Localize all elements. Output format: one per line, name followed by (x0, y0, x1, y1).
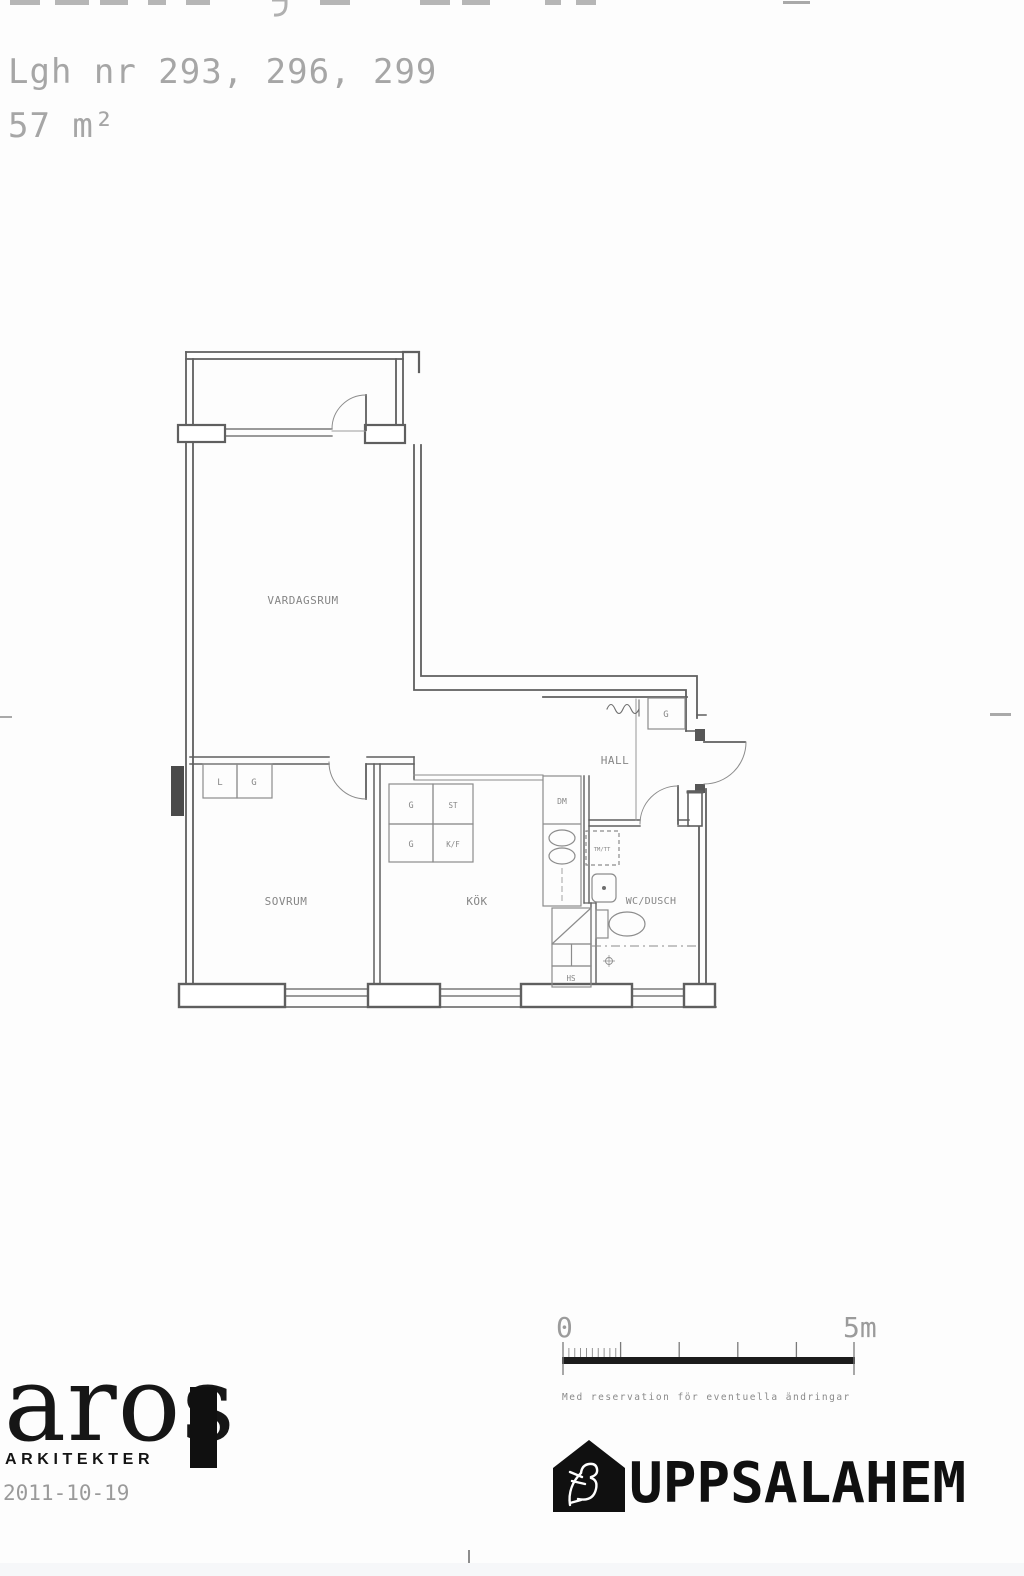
sink-bowl (549, 848, 575, 864)
label-kitchen-g2: G (408, 840, 413, 850)
drawing-date: 2011-10-19 (3, 1481, 129, 1505)
uppsalahem-house-icon (553, 1440, 625, 1512)
cropped-title-fragments (0, 0, 1024, 22)
label-tm-tt: TM/TT (594, 847, 611, 853)
sink-bowl (549, 830, 575, 846)
toilet-tank (596, 910, 608, 938)
uppsalahem-logo: UPPSALAHEM (548, 1430, 1020, 1522)
label-kok: KÖK (466, 895, 487, 908)
floorplan-drawing: VARDAGSRUM SOVRUM KÖK WC/DUSCH HALL L G … (160, 330, 780, 1030)
aros-subtitle: ARKITEKTER (5, 1451, 154, 1469)
aros-logo-bar (190, 1387, 217, 1468)
label-closet-l: L (217, 778, 222, 788)
scale-bar: 0 5m Med reservation för eventuella ändr… (540, 1295, 885, 1410)
scale-disclaimer: Med reservation för eventuella ändringar (562, 1392, 851, 1403)
toilet-bowl (609, 912, 645, 936)
floorplan-page: Lgh nr 293, 296, 299 57 m² (0, 0, 1024, 1576)
uppsalahem-logo-text: UPPSALAHEM (629, 1451, 966, 1516)
crop-mark-left (0, 716, 12, 718)
bottom-band (0, 1563, 1024, 1576)
walls (171, 352, 746, 1007)
label-hall-g: G (663, 710, 668, 720)
label-kitchen-st: ST (448, 801, 458, 810)
scale-bar-line (562, 1357, 855, 1364)
label-wc-dusch: WC/DUSCH (626, 896, 677, 907)
label-kitchen-kf: K/F (446, 840, 460, 849)
scale-five-m: 5m (843, 1311, 877, 1344)
label-dm: DM (557, 797, 567, 806)
label-sovrum: SOVRUM (265, 895, 308, 908)
label-vardagsrum: VARDAGSRUM (267, 594, 338, 607)
label-hall: HALL (601, 754, 630, 767)
label-hs: HS (566, 974, 576, 983)
crop-mark-right (990, 713, 1011, 716)
crop-mark-top-right (783, 1, 810, 4)
label-kitchen-g1: G (408, 801, 413, 811)
scale-zero: 0 (556, 1311, 573, 1344)
apartment-numbers: Lgh nr 293, 296, 299 (8, 52, 437, 92)
apartment-area: 57 m² (8, 106, 115, 146)
label-closet-g: G (251, 778, 256, 788)
